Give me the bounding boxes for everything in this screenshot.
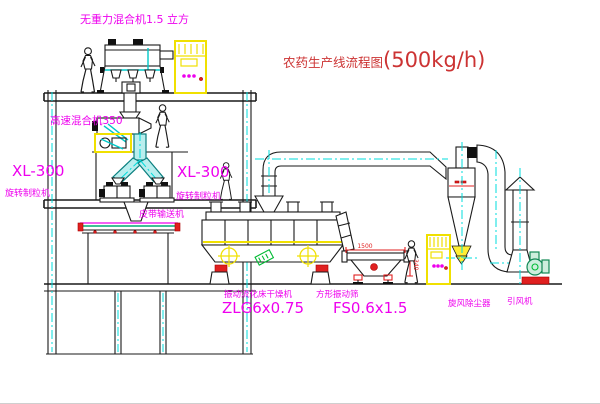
granulator-left-name-label: 旋转制粒机 — [5, 187, 50, 199]
dryer-model-label: ZLG6x0.75 — [222, 299, 304, 317]
granulator-right-name-label: 旋转制粒机 — [176, 190, 221, 202]
belt-conveyor-label: 皮带输送机 — [139, 208, 184, 220]
floor2-mixer-label: 高速混合机350 — [50, 114, 123, 127]
cyclone-label: 旋风除尘器 — [448, 298, 491, 309]
page-title: 农药生产线流程图(500kg/h) — [283, 48, 485, 72]
granulator-left — [99, 178, 134, 202]
fan-label: 引风机 — [507, 296, 533, 307]
granulator-right-model-label: XL-300 — [177, 163, 229, 181]
person-floor2 — [156, 105, 169, 147]
control-cabinet-1 — [175, 41, 206, 93]
granulator-left-model-label: XL-300 — [12, 162, 64, 180]
process-flow-diagram: 无重力混合机1.5 立方 农药生产线流程图(500kg/h) 高速混合机350 … — [0, 0, 600, 404]
granulator-right — [139, 178, 174, 202]
person-top-floor — [81, 48, 95, 92]
fluid-bed-dryer — [202, 196, 343, 284]
exhaust-duct — [255, 150, 448, 212]
vibrating-sieve — [336, 212, 413, 284]
sieve-model-label: FS0.6x1.5 — [333, 299, 407, 317]
control-cabinet-2 — [427, 235, 450, 284]
top-mixer-label: 无重力混合机1.5 立方 — [80, 12, 189, 26]
sieve-length-dimension: 1500 — [357, 243, 372, 250]
sieve-height-dimension: 340 — [412, 259, 419, 271]
y-discharge-chute — [113, 132, 163, 182]
